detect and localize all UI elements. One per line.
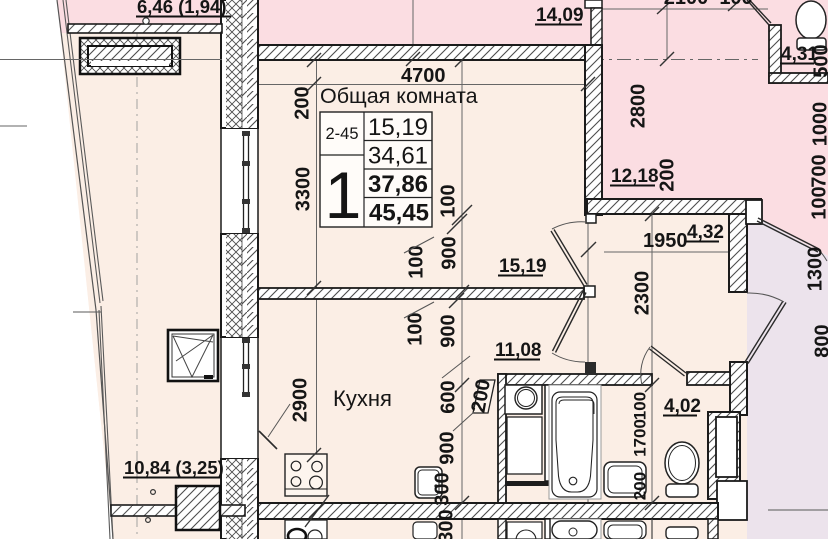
svg-text:3300: 3300	[292, 167, 314, 212]
svg-text:2900: 2900	[289, 378, 311, 423]
svg-text:2-45: 2-45	[325, 125, 358, 143]
svg-text:34,61: 34,61	[368, 143, 428, 170]
svg-text:1700: 1700	[630, 419, 649, 457]
svg-text:900: 900	[437, 314, 459, 347]
svg-text:100: 100	[719, 0, 752, 9]
svg-text:1300: 1300	[804, 247, 826, 292]
svg-text:11,08: 11,08	[495, 340, 542, 361]
svg-text:700: 700	[808, 154, 828, 187]
svg-text:600: 600	[437, 380, 459, 413]
svg-text:100: 100	[404, 312, 426, 345]
svg-text:500: 500	[810, 44, 828, 77]
svg-text:4,32: 4,32	[687, 222, 724, 243]
svg-text:300: 300	[435, 509, 457, 539]
svg-text:200: 200	[630, 472, 649, 500]
svg-text:4700: 4700	[401, 65, 446, 87]
svg-text:15,19: 15,19	[368, 114, 428, 141]
svg-text:100: 100	[437, 184, 459, 217]
svg-text:15,19: 15,19	[499, 256, 547, 277]
svg-text:10,84 (3,25): 10,84 (3,25)	[124, 457, 224, 478]
svg-text:2300: 2300	[631, 271, 653, 316]
svg-text:Кухня: Кухня	[333, 386, 392, 411]
svg-text:45,45: 45,45	[369, 200, 429, 227]
svg-text:6,46 (1,94): 6,46 (1,94)	[137, 0, 226, 17]
svg-text:200: 200	[291, 86, 313, 119]
svg-text:Общая комната: Общая комната	[320, 84, 478, 108]
svg-text:2800: 2800	[627, 84, 649, 129]
svg-text:200: 200	[656, 158, 678, 191]
svg-text:2100: 2100	[664, 0, 709, 9]
svg-text:1: 1	[325, 158, 362, 232]
svg-text:1000: 1000	[809, 102, 828, 147]
svg-text:12,18: 12,18	[611, 166, 659, 187]
svg-text:900: 900	[438, 236, 460, 269]
svg-text:300: 300	[431, 472, 453, 505]
svg-text:37,86: 37,86	[368, 171, 428, 198]
svg-text:4,02: 4,02	[664, 396, 701, 417]
svg-text:800: 800	[811, 324, 828, 357]
svg-text:100: 100	[808, 186, 828, 219]
svg-text:100: 100	[630, 392, 649, 420]
svg-text:14,09: 14,09	[536, 5, 584, 26]
svg-text:1950: 1950	[643, 230, 688, 252]
svg-text:900: 900	[436, 431, 458, 464]
